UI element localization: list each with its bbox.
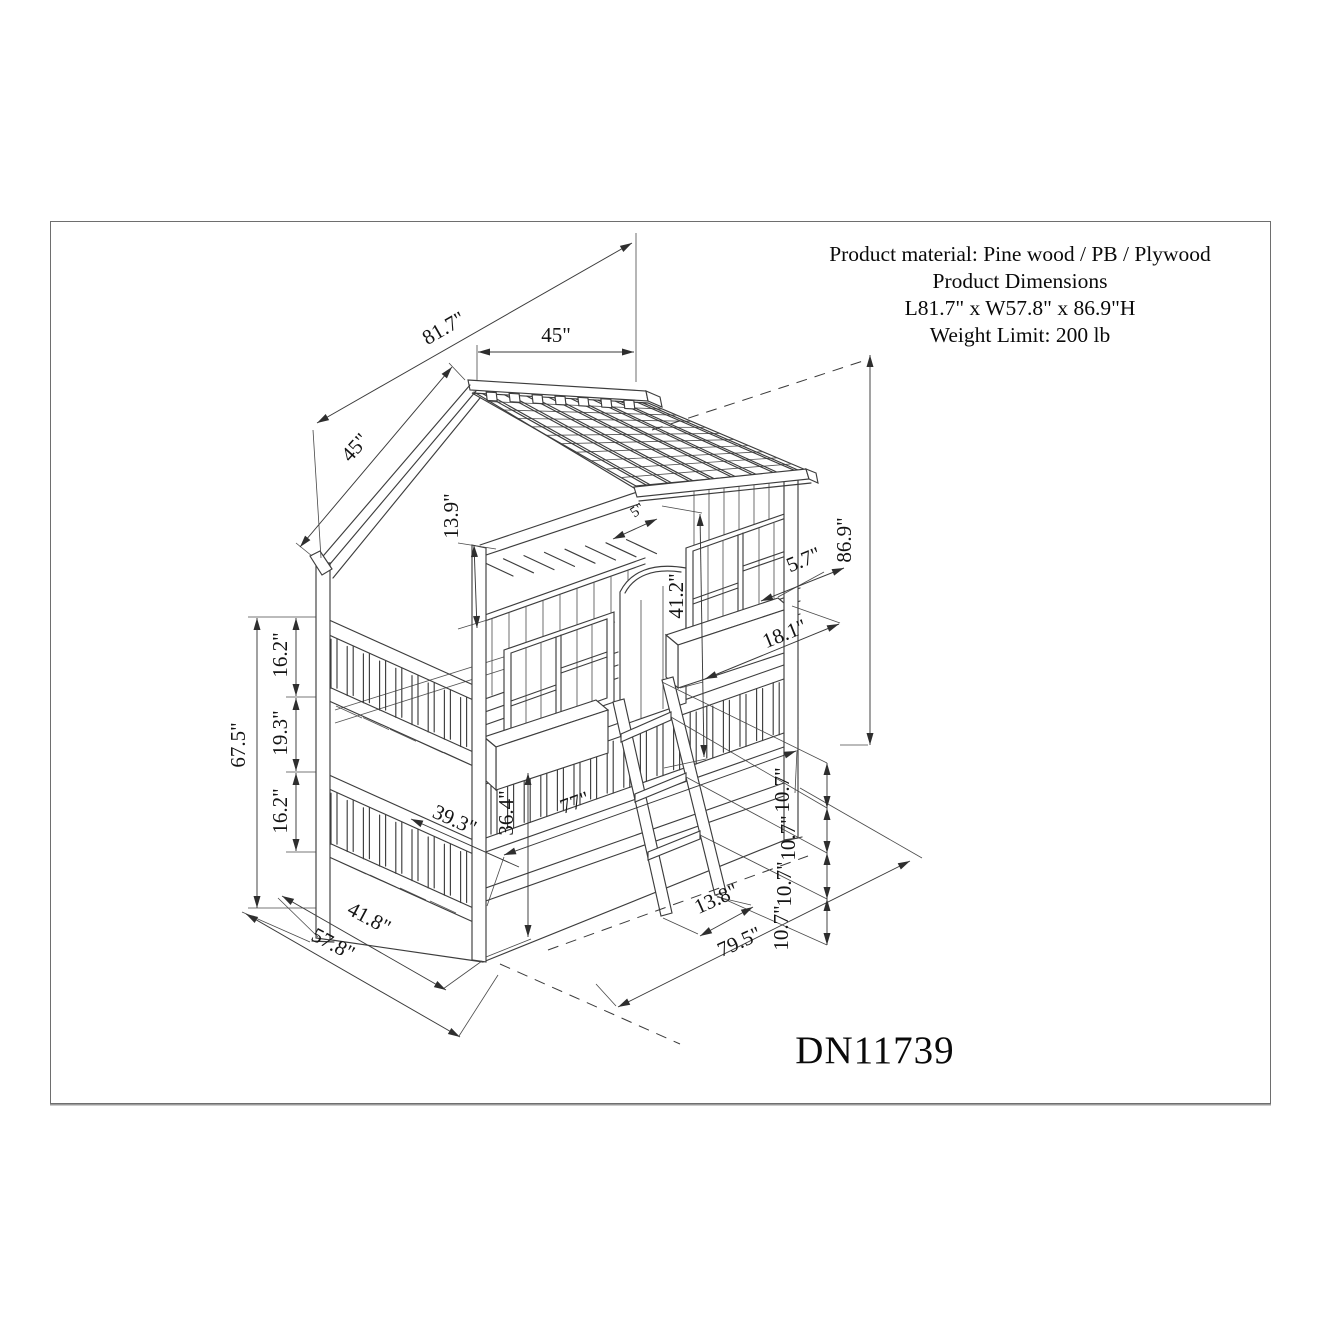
dim-wall-height: 41.2"	[664, 573, 688, 618]
page: { "product_info": { "line1": "Product ma…	[0, 0, 1322, 1322]
dim-rail-gap: 19.3"	[268, 710, 292, 755]
model-number: DN11739	[735, 1028, 1015, 1073]
dim-total-height: 86.9"	[832, 517, 856, 562]
dim-ladder-offset: 13.8"	[691, 878, 742, 918]
dim-roof-top: 45"	[541, 323, 571, 347]
dim-lower-rail: 16.2"	[268, 788, 292, 833]
dim-upper-rail: 16.2"	[268, 632, 292, 677]
dim-width-inner: 41.8"	[344, 897, 395, 939]
dim-roof-length: 81.7"	[418, 306, 469, 349]
dim-roof-overhang: 13.9"	[439, 493, 463, 538]
dim-step1: 10.7"	[770, 767, 794, 812]
dim-step4: 10.7"	[769, 905, 793, 950]
dim-step3: 10.7"	[772, 861, 796, 906]
dim-width-total: 57.8"	[308, 923, 359, 965]
upper-bunk-slats	[483, 540, 657, 576]
dim-roof-slope: 45"	[336, 428, 374, 466]
dim-side-rail-total: 67.5"	[226, 722, 250, 767]
roof	[472, 393, 806, 486]
dim-door-gap: 5"	[628, 500, 648, 521]
dim-floor-length: 79.5"	[714, 921, 765, 961]
gable-end	[318, 615, 483, 962]
bunk-bed-technical-drawing: 81.7" 45" 45" 13.9" 86.9" 41.2" 5" 5.7" …	[0, 0, 1322, 1322]
gable-upper-balusters	[331, 639, 467, 746]
dim-step2: 10.7"	[776, 815, 800, 860]
dim-bed-length: 77"	[557, 786, 593, 819]
dim-bunk-clearance: 36.4"	[494, 790, 518, 835]
